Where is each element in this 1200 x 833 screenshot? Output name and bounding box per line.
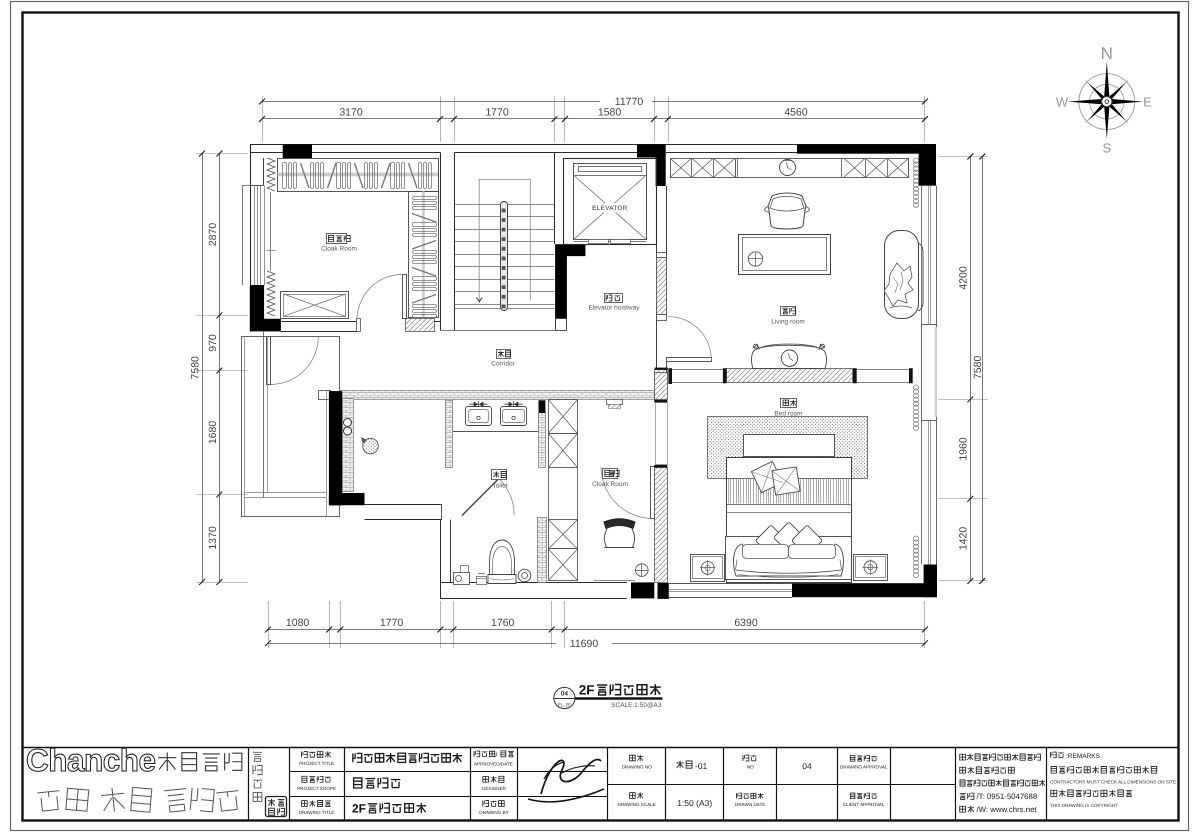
svg-text:Cloak Room: Cloak Room — [592, 481, 628, 488]
svg-text:NO: NO — [747, 765, 754, 770]
svg-text:/W: www.chrs.net: /W: www.chrs.net — [977, 805, 1038, 814]
svg-text:DRAWING BY: DRAWING BY — [479, 810, 508, 815]
svg-text:Toilet: Toilet — [492, 483, 507, 490]
svg-text:970: 970 — [207, 334, 219, 352]
svg-text:DRAWING APPROVAL: DRAWING APPROVAL — [840, 765, 888, 770]
svg-text:2F: 2F — [579, 683, 595, 698]
svg-text:1080: 1080 — [286, 617, 310, 629]
svg-text:E: E — [1143, 95, 1152, 110]
svg-text:7580: 7580 — [190, 356, 202, 380]
svg-text:04: 04 — [561, 691, 569, 698]
svg-text:DRAWING TITLE: DRAWING TITLE — [299, 810, 335, 815]
svg-text:1370: 1370 — [207, 526, 219, 550]
svg-text:/: / — [496, 752, 498, 759]
svg-text:ELEVATOR: ELEVATOR — [592, 205, 628, 212]
svg-text:/T: 0951-5047688: /T: 0951-5047688 — [977, 792, 1038, 801]
svg-text:Chanche: Chanche — [26, 742, 156, 778]
svg-text:4560: 4560 — [784, 107, 808, 119]
svg-text:Cloak Room: Cloak Room — [321, 246, 357, 253]
svg-text:1:50 (A3): 1:50 (A3) — [677, 798, 712, 808]
svg-text:APPROVED/DATE:: APPROVED/DATE: — [474, 762, 514, 767]
svg-text::REMARKS: :REMARKS — [1066, 753, 1101, 760]
svg-text:2870: 2870 — [207, 223, 219, 247]
svg-text:1680: 1680 — [207, 421, 219, 445]
svg-text:DRAWING NO: DRAWING NO — [622, 765, 653, 770]
svg-text:Bed room: Bed room — [774, 411, 802, 418]
svg-text:CLIENT APPROVAL: CLIENT APPROVAL — [843, 802, 885, 807]
svg-text:-01: -01 — [695, 761, 708, 771]
svg-text:PROJECT SOOPE: PROJECT SOOPE — [297, 786, 336, 791]
svg-text:7580: 7580 — [972, 356, 984, 380]
svg-text:DRAWN DATE: DRAWN DATE — [735, 802, 765, 807]
svg-text:Living room: Living room — [771, 319, 805, 326]
svg-text:1420: 1420 — [958, 527, 970, 551]
svg-text:CONTRACTORS MUST CHECK ALL DIM: CONTRACTORS MUST CHECK ALL DIMENSIONS ON… — [1050, 780, 1176, 785]
svg-text:PROJECT TITLE: PROJECT TITLE — [299, 761, 334, 766]
svg-text:1770: 1770 — [380, 617, 404, 629]
svg-text:1580: 1580 — [598, 107, 622, 119]
svg-text:N: N — [1101, 44, 1113, 63]
svg-text:DESIGNER: DESIGNER — [482, 786, 507, 791]
svg-text:4200: 4200 — [958, 266, 970, 290]
svg-text:1770: 1770 — [485, 107, 509, 119]
svg-text:04: 04 — [802, 761, 812, 771]
svg-text:Elevator hoistway: Elevator hoistway — [589, 305, 641, 312]
svg-text:3170: 3170 — [339, 107, 363, 119]
svg-text:Corridor: Corridor — [491, 361, 515, 368]
svg-text:11690: 11690 — [570, 638, 599, 650]
svg-text:1760: 1760 — [491, 617, 515, 629]
svg-text:S: S — [1102, 141, 1111, 156]
svg-text:6390: 6390 — [734, 617, 758, 629]
svg-text:THIS DRAWING IS COPYRIGHT: THIS DRAWING IS COPYRIGHT — [1050, 803, 1118, 808]
svg-text:DRAWING SCALE: DRAWING SCALE — [618, 802, 656, 807]
svg-text:2F: 2F — [352, 802, 366, 816]
svg-text:W: W — [1056, 95, 1069, 110]
svg-text:1960: 1960 — [958, 437, 970, 461]
svg-text:FL-2F: FL-2F — [558, 703, 571, 709]
svg-text:SCALE:1:50@A3: SCALE:1:50@A3 — [611, 702, 662, 709]
